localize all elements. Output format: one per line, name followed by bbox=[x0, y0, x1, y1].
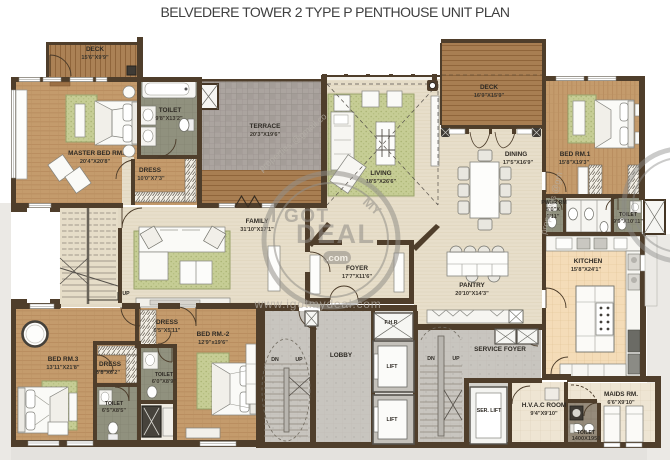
svg-text:9'8"X13'2": 9'8"X13'2" bbox=[155, 116, 183, 122]
svg-text:13'11"X21'8": 13'11"X21'8" bbox=[46, 365, 80, 371]
svg-text:TOILET: TOILET bbox=[105, 401, 124, 407]
svg-text:6'6"X9'10": 6'6"X9'10" bbox=[607, 400, 635, 406]
svg-text:DRESS: DRESS bbox=[99, 361, 122, 368]
svg-text:6'5"X5'11": 6'5"X5'11" bbox=[154, 328, 181, 334]
svg-text:BED RM.-2: BED RM.-2 bbox=[197, 331, 230, 338]
svg-text:10'0"X7'3": 10'0"X7'3" bbox=[137, 176, 165, 182]
svg-text:SERVICE FOYER: SERVICE FOYER bbox=[474, 346, 526, 353]
svg-text:TOILET: TOILET bbox=[155, 372, 174, 378]
svg-text:15'6"X9'9": 15'6"X9'9" bbox=[81, 55, 109, 61]
svg-text:6'5"X8'5": 6'5"X8'5" bbox=[102, 408, 126, 414]
svg-text:TERRACE: TERRACE bbox=[250, 123, 282, 130]
svg-text:DECK: DECK bbox=[86, 46, 104, 53]
svg-text:15'8"X19'3": 15'8"X19'3" bbox=[559, 160, 590, 166]
svg-text:DN: DN bbox=[271, 357, 279, 363]
svg-text:UP: UP bbox=[452, 356, 460, 362]
svg-text:20'4"X20'8": 20'4"X20'8" bbox=[80, 159, 111, 165]
svg-text:DRESS: DRESS bbox=[139, 167, 162, 174]
svg-text:15'8"X24'1": 15'8"X24'1" bbox=[571, 267, 602, 273]
svg-text:9'4"X9'10": 9'4"X9'10" bbox=[530, 411, 558, 417]
svg-text:www.igotmydeal.com: www.igotmydeal.com bbox=[253, 297, 381, 311]
svg-text:UP: UP bbox=[122, 291, 130, 297]
svg-text:20'3"X19'6": 20'3"X19'6" bbox=[250, 132, 281, 138]
svg-text:.com: .com bbox=[326, 253, 348, 264]
svg-text:1400X1950: 1400X1950 bbox=[572, 436, 601, 442]
svg-text:6'0"X8'9": 6'0"X8'9" bbox=[152, 379, 176, 385]
svg-text:DECK: DECK bbox=[480, 84, 498, 91]
svg-text:LIVING: LIVING bbox=[370, 170, 391, 177]
svg-text:MAIDS RM.: MAIDS RM. bbox=[604, 391, 638, 398]
svg-text:DN: DN bbox=[427, 356, 435, 362]
svg-text:12'9"x19'6": 12'9"x19'6" bbox=[198, 340, 228, 346]
svg-text:I: I bbox=[271, 206, 276, 227]
svg-text:31'10"X17'1": 31'10"X17'1" bbox=[240, 227, 274, 233]
svg-text:H.V.A.C ROOM: H.V.A.C ROOM bbox=[522, 402, 567, 409]
svg-text:20'10"X14'3": 20'10"X14'3" bbox=[455, 291, 489, 297]
svg-text:TOILET: TOILET bbox=[159, 107, 182, 114]
svg-text:16'9"X15'9": 16'9"X15'9" bbox=[474, 93, 505, 99]
svg-text:DINING: DINING bbox=[505, 151, 527, 158]
svg-text:UP: UP bbox=[295, 357, 303, 363]
svg-text:MASTER BED RM.: MASTER BED RM. bbox=[68, 150, 124, 157]
svg-text:BED RM.3: BED RM.3 bbox=[48, 356, 79, 363]
svg-text:LIFT: LIFT bbox=[387, 364, 399, 370]
svg-text:17'5"X16'9": 17'5"X16'9" bbox=[503, 160, 534, 166]
svg-text:FOYER: FOYER bbox=[346, 265, 368, 272]
svg-text:6'8"X6'2": 6'8"X6'2" bbox=[96, 370, 120, 376]
svg-text:KITCHEN: KITCHEN bbox=[574, 258, 603, 265]
svg-text:F.H.R: F.H.R bbox=[385, 320, 398, 326]
svg-text:BED RM.1: BED RM.1 bbox=[560, 151, 591, 158]
svg-text:LIFT: LIFT bbox=[387, 417, 399, 423]
svg-text:PANTRY: PANTRY bbox=[459, 282, 485, 289]
svg-text:17'7"X11'6": 17'7"X11'6" bbox=[342, 274, 372, 280]
svg-text:DRESS: DRESS bbox=[156, 319, 179, 326]
svg-text:BELVEDERE TOWER 2 TYPE P PENTH: BELVEDERE TOWER 2 TYPE P PENTHOUSE UNIT … bbox=[160, 4, 509, 20]
svg-text:LOBBY: LOBBY bbox=[330, 352, 353, 359]
svg-text:SER. LIFT: SER. LIFT bbox=[477, 408, 502, 414]
svg-text:DEAL: DEAL bbox=[296, 219, 376, 249]
